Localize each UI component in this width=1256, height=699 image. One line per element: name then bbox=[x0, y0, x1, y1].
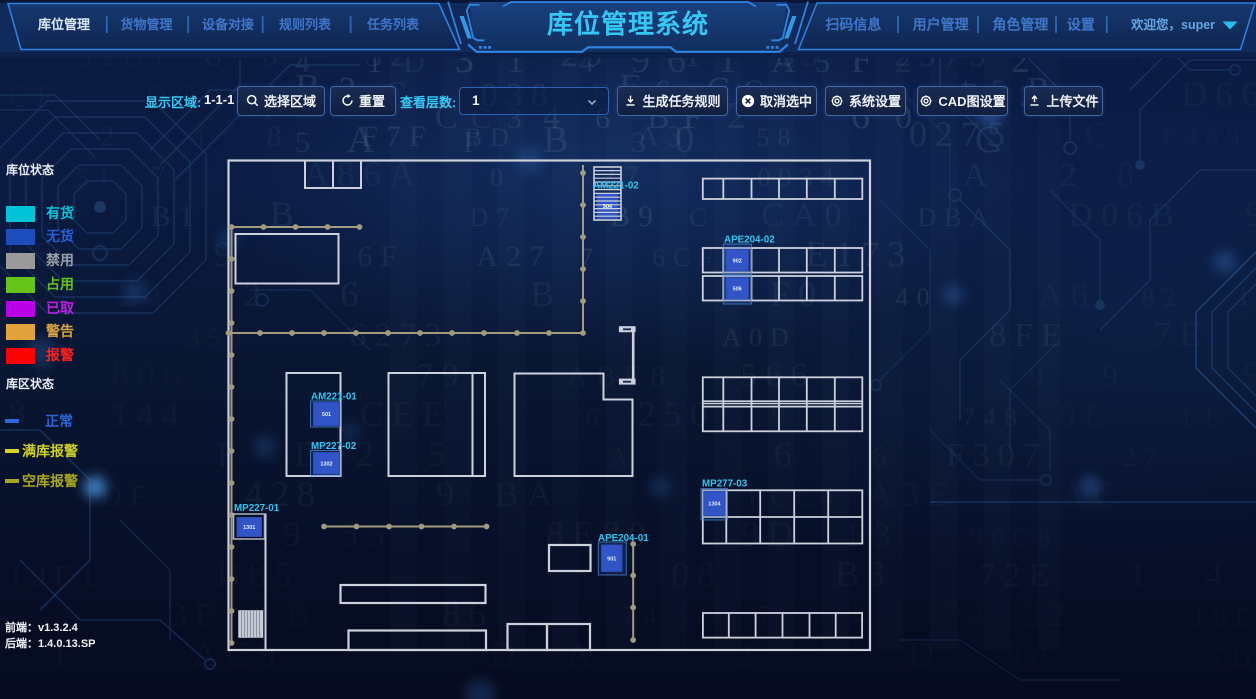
svg-text:501: 501 bbox=[322, 412, 331, 418]
svg-text:901: 901 bbox=[607, 556, 616, 562]
svg-text:506: 506 bbox=[733, 286, 742, 292]
svg-text:1304: 1304 bbox=[708, 502, 721, 508]
svg-text:902: 902 bbox=[733, 258, 742, 264]
svg-text:MP277-03: MP277-03 bbox=[702, 479, 748, 490]
svg-text:504: 504 bbox=[603, 204, 613, 210]
svg-text:MP227-01: MP227-01 bbox=[234, 503, 280, 514]
svg-text:1301: 1301 bbox=[243, 525, 255, 531]
svg-text:1302: 1302 bbox=[320, 461, 332, 467]
svg-text:AM221-02: AM221-02 bbox=[593, 181, 639, 192]
